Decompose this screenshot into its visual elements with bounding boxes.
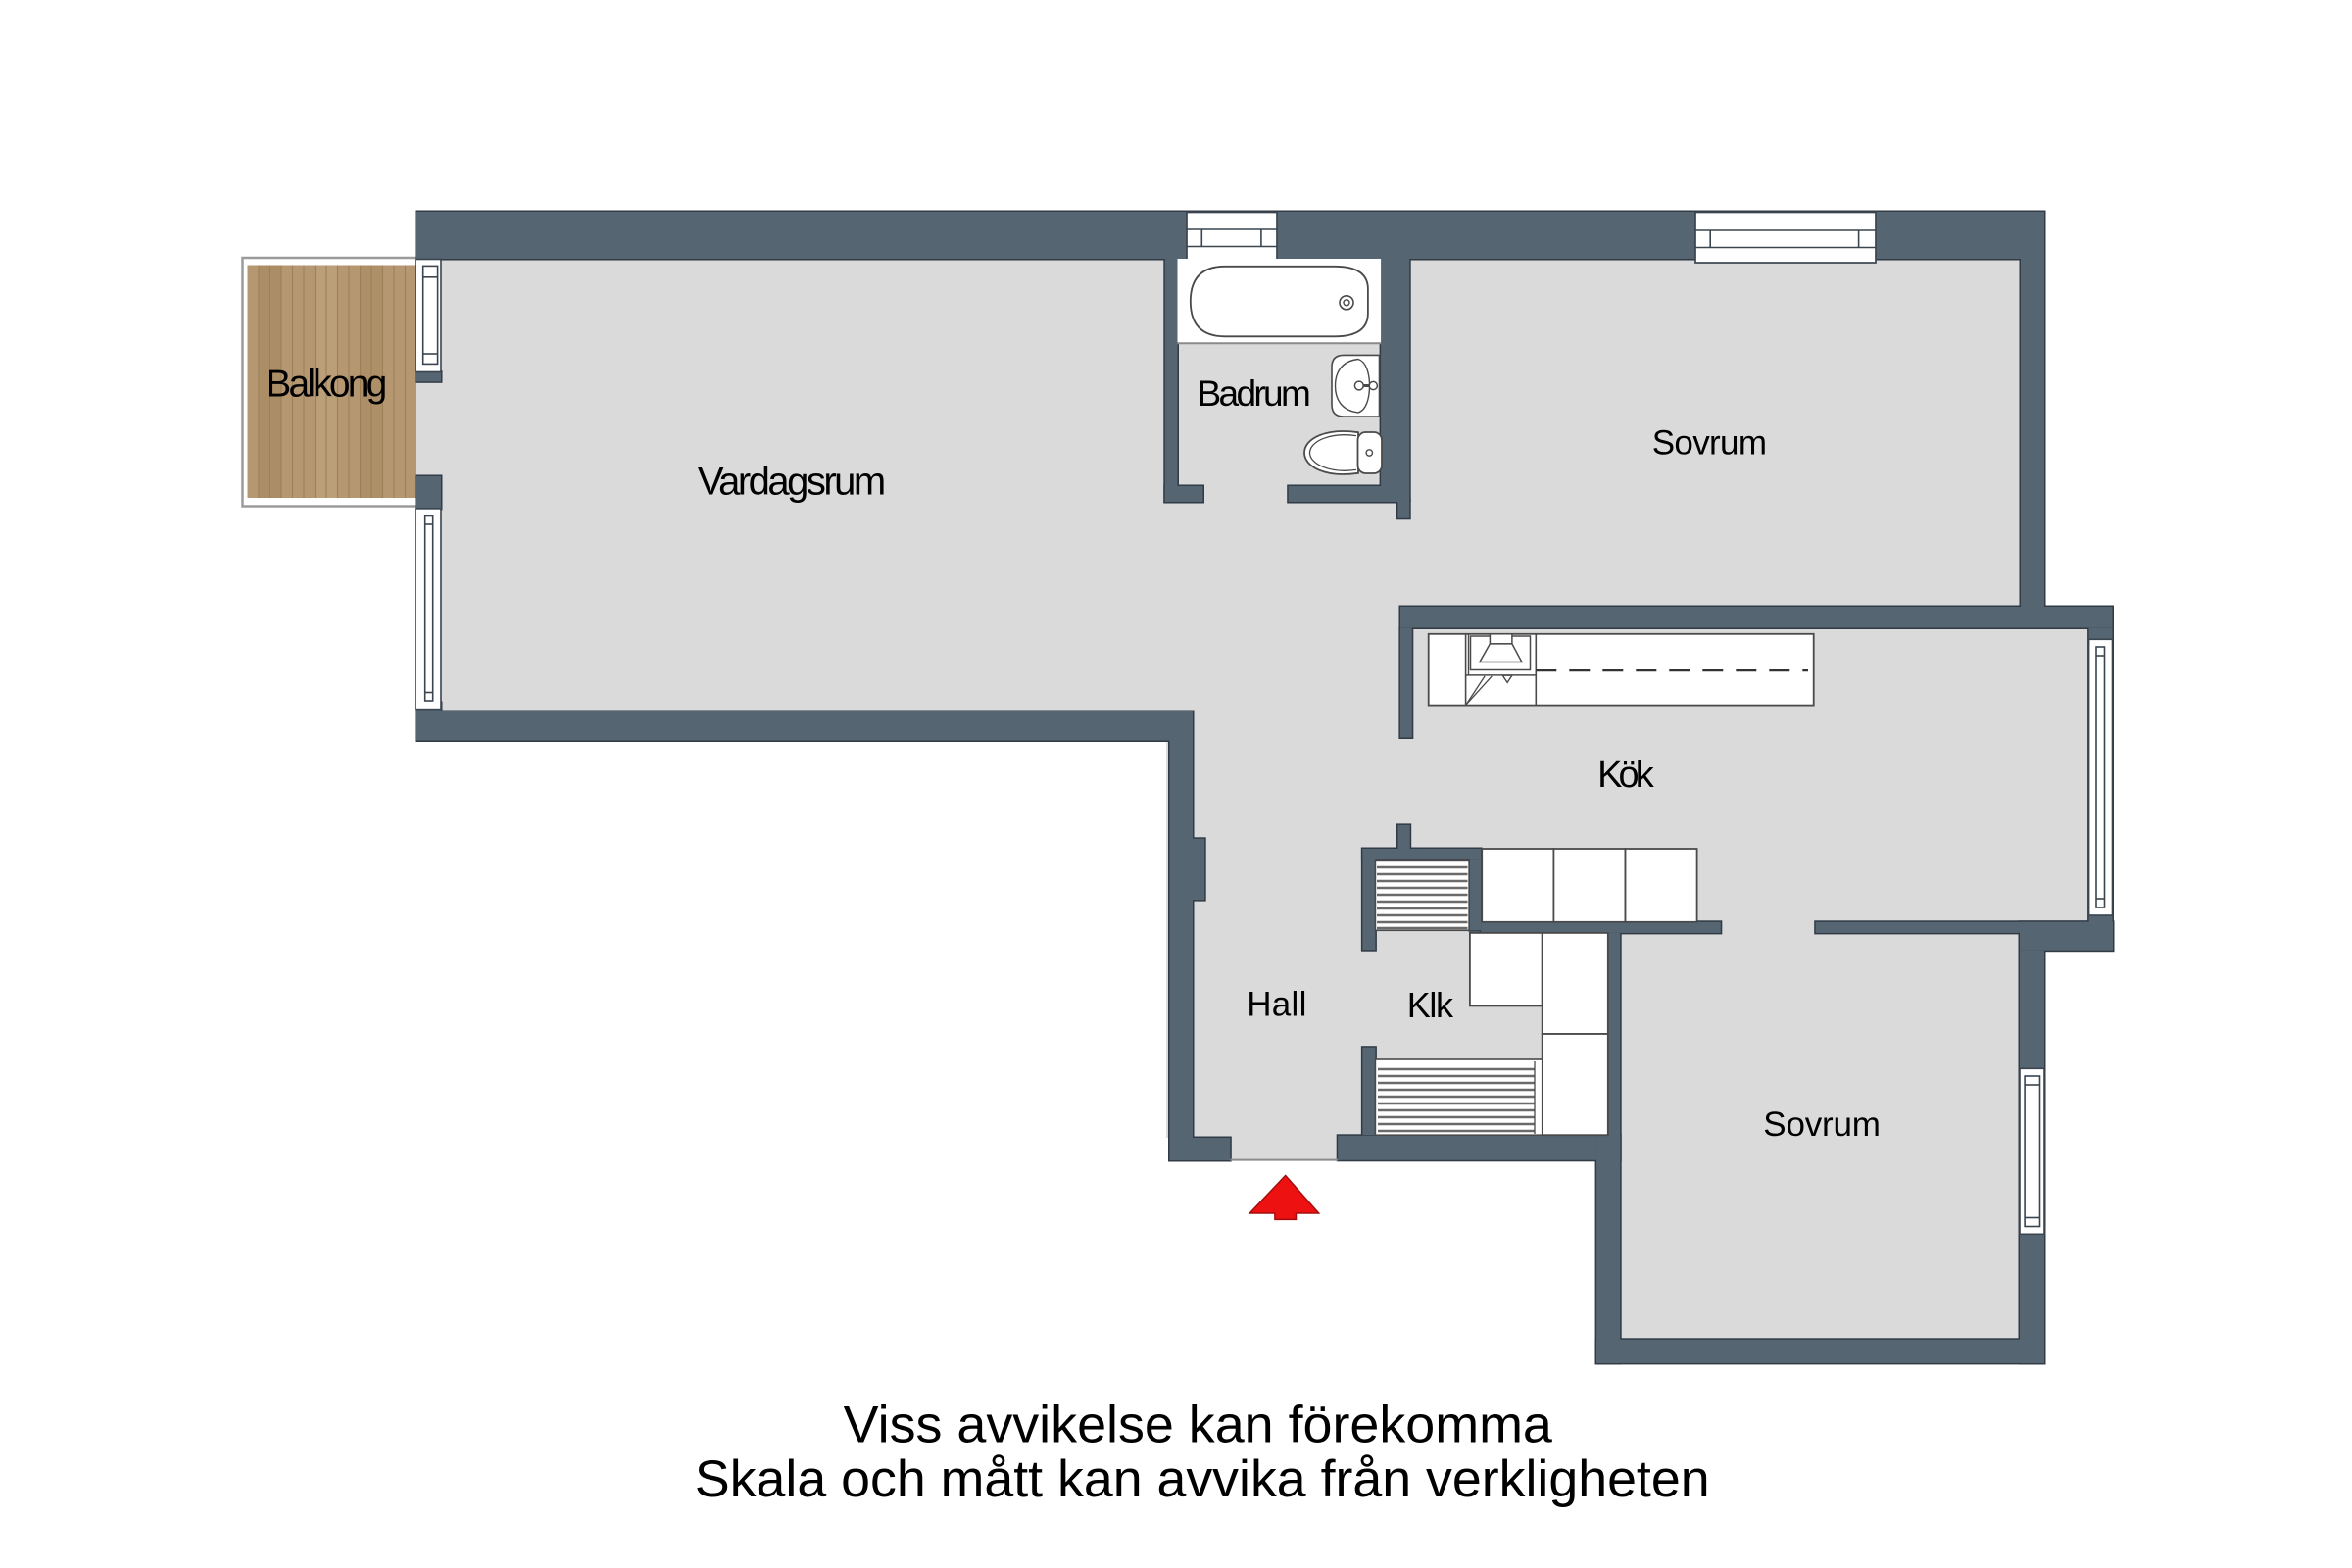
svg-text:Balkong: Balkong	[266, 364, 387, 406]
svg-text:Vardagsrum: Vardagsrum	[698, 461, 886, 504]
svg-text:Sovrum: Sovrum	[1763, 1105, 1881, 1144]
svg-text:Sovrum: Sovrum	[1652, 423, 1767, 462]
svg-text:Skala och mått kan avvika från: Skala och mått kan avvika från verklighe…	[695, 1450, 1710, 1508]
svg-text:Hall: Hall	[1247, 986, 1306, 1024]
svg-text:Klk: Klk	[1407, 985, 1454, 1025]
svg-text:Viss avvikelse kan förekomma: Viss avvikelse kan förekomma	[844, 1396, 1553, 1453]
svg-text:Badrum: Badrum	[1198, 373, 1311, 414]
svg-text:Kök: Kök	[1597, 755, 1655, 796]
